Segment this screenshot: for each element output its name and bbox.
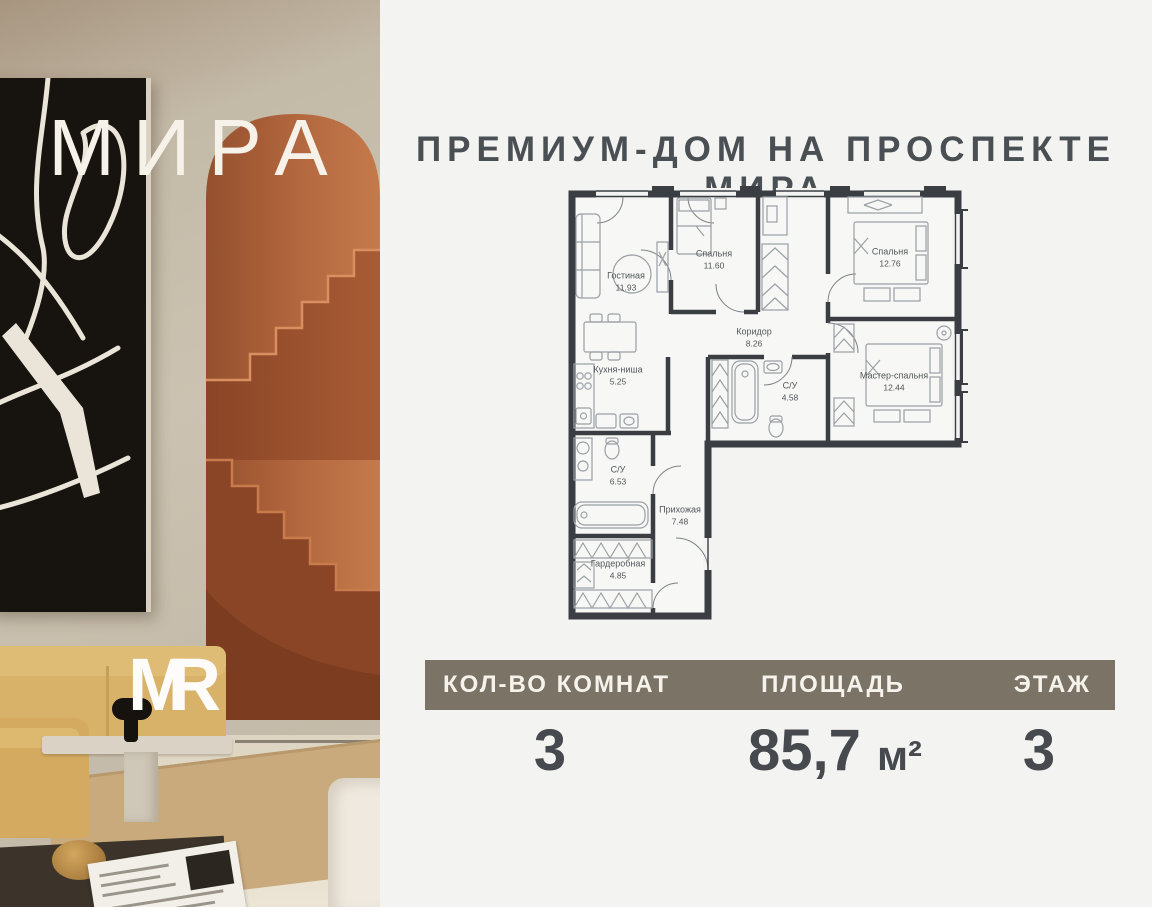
spiral-staircase: [148, 100, 380, 720]
area-unit: м²: [877, 732, 922, 779]
room-label: Спальня12.76: [872, 247, 908, 270]
area-label: ПЛОЩАДЬ: [761, 671, 905, 699]
listing-panel: ПРЕМИУМ-ДОМ НА ПРОСПЕКТЕ МИРА: [380, 0, 1152, 907]
room-label: Гардеробная4.85: [591, 559, 645, 582]
summary-bar: КОЛ-ВО КОМНАТ ПЛОЩАДЬ ЭТАЖ: [425, 660, 1115, 710]
interior-photo: МИРА MR: [0, 0, 380, 907]
area-value: 85,7 м²: [748, 722, 922, 780]
room-label: С/У4.58: [782, 381, 799, 404]
summary-values: 3 85,7 м² 3: [425, 722, 1115, 780]
white-chair: [328, 778, 380, 907]
room-label: Мастер-спальня12.44: [860, 371, 928, 394]
logo-letter-r: R: [168, 643, 221, 726]
floor-label: ЭТАЖ: [1014, 671, 1115, 699]
room-label: Кухня-ниша5.25: [593, 365, 642, 388]
brand-logo: MR: [128, 648, 221, 722]
rooms-count-label: КОЛ-ВО КОМНАТ: [425, 671, 675, 699]
room-label: С/У6.53: [610, 465, 627, 488]
real-estate-card: { "photo": { "wordmark": "МИРА", "logo":…: [0, 0, 1152, 907]
room-label: Коридор8.26: [736, 327, 772, 350]
room-label: Гостиная11.93: [607, 271, 645, 294]
room-label: Спальня11.60: [696, 249, 732, 272]
rooms-count-value: 3: [534, 722, 566, 780]
floor-value: 3: [1023, 722, 1055, 780]
brand-wordmark: МИРА: [0, 108, 380, 188]
floor-plan: Гостиная11.93Спальня11.60Спальня12.76Кор…: [568, 186, 968, 631]
room-label: Прихожая7.48: [659, 505, 701, 528]
